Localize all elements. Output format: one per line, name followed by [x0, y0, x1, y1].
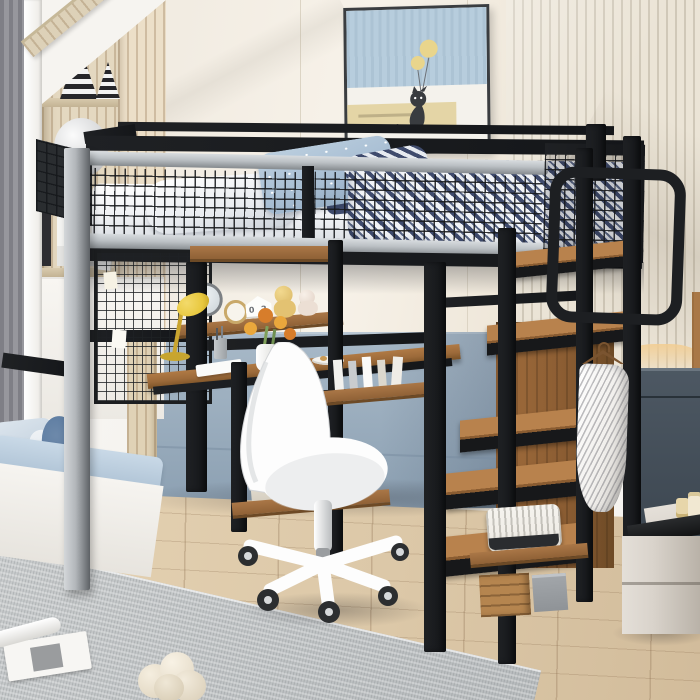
- gray-bin: [532, 573, 568, 612]
- knot-lobe: [154, 674, 184, 700]
- flower: [244, 322, 257, 335]
- stair-handrail-loop: [545, 166, 686, 327]
- magazine-photo: [30, 643, 63, 671]
- knot-pillow: [134, 650, 208, 700]
- nightstand-body: [622, 536, 700, 634]
- pegboard-card: [111, 330, 126, 349]
- pegboard-card: [103, 271, 117, 289]
- office-chair: [226, 342, 426, 632]
- pens: [216, 328, 218, 340]
- flower: [284, 328, 296, 340]
- flower: [258, 308, 273, 323]
- guardrail-divider: [302, 166, 314, 246]
- bedroom-scene: 0 2: [0, 0, 700, 700]
- hanging-garment: [574, 363, 629, 513]
- hanging-shelf-under-bed: [190, 246, 332, 262]
- guardrail-mesh-left: [83, 168, 302, 241]
- hanger-hook: [598, 342, 610, 352]
- niche-shelf-board: [42, 98, 118, 107]
- flower: [274, 316, 287, 329]
- cat-balloon-illustration: [385, 36, 456, 138]
- wooden-crate: [479, 573, 531, 618]
- bed-front-left-post: [64, 148, 90, 590]
- nightstand-drawer-gap: [622, 582, 700, 585]
